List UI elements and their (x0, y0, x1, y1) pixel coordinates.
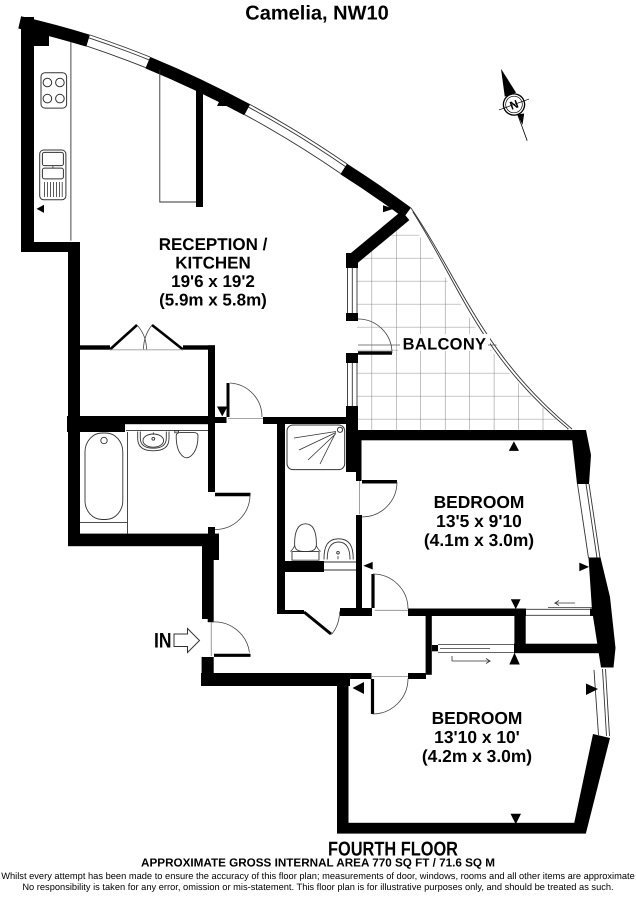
svg-text:13'5 x 9'10: 13'5 x 9'10 (436, 511, 522, 531)
svg-text:KITCHEN: KITCHEN (175, 254, 251, 273)
svg-text:BALCONY: BALCONY (403, 336, 487, 354)
svg-text:BEDROOM: BEDROOM (434, 492, 525, 512)
svg-text:Camelia, NW10: Camelia, NW10 (245, 2, 388, 24)
svg-text:(5.9m x 5.8m): (5.9m x 5.8m) (159, 291, 267, 310)
svg-text:No responsibility is taken for: No responsibility is taken for any error… (22, 882, 613, 892)
svg-text:19'6 x 19'2: 19'6 x 19'2 (171, 272, 255, 291)
svg-text:RECEPTION /: RECEPTION / (159, 235, 268, 254)
svg-text:13'10 x 10': 13'10 x 10' (434, 727, 520, 747)
svg-text:IN: IN (154, 629, 172, 652)
svg-text:Whilst every attempt has been: Whilst every attempt has been made to en… (1, 871, 635, 881)
svg-text:BEDROOM: BEDROOM (432, 708, 523, 728)
svg-text:(4.2m x 3.0m): (4.2m x 3.0m) (422, 746, 532, 766)
svg-text:APPROXIMATE GROSS INTERNAL ARE: APPROXIMATE GROSS INTERNAL AREA 770 SQ F… (141, 857, 495, 870)
svg-text:(4.1m x 3.0m): (4.1m x 3.0m) (424, 530, 534, 550)
